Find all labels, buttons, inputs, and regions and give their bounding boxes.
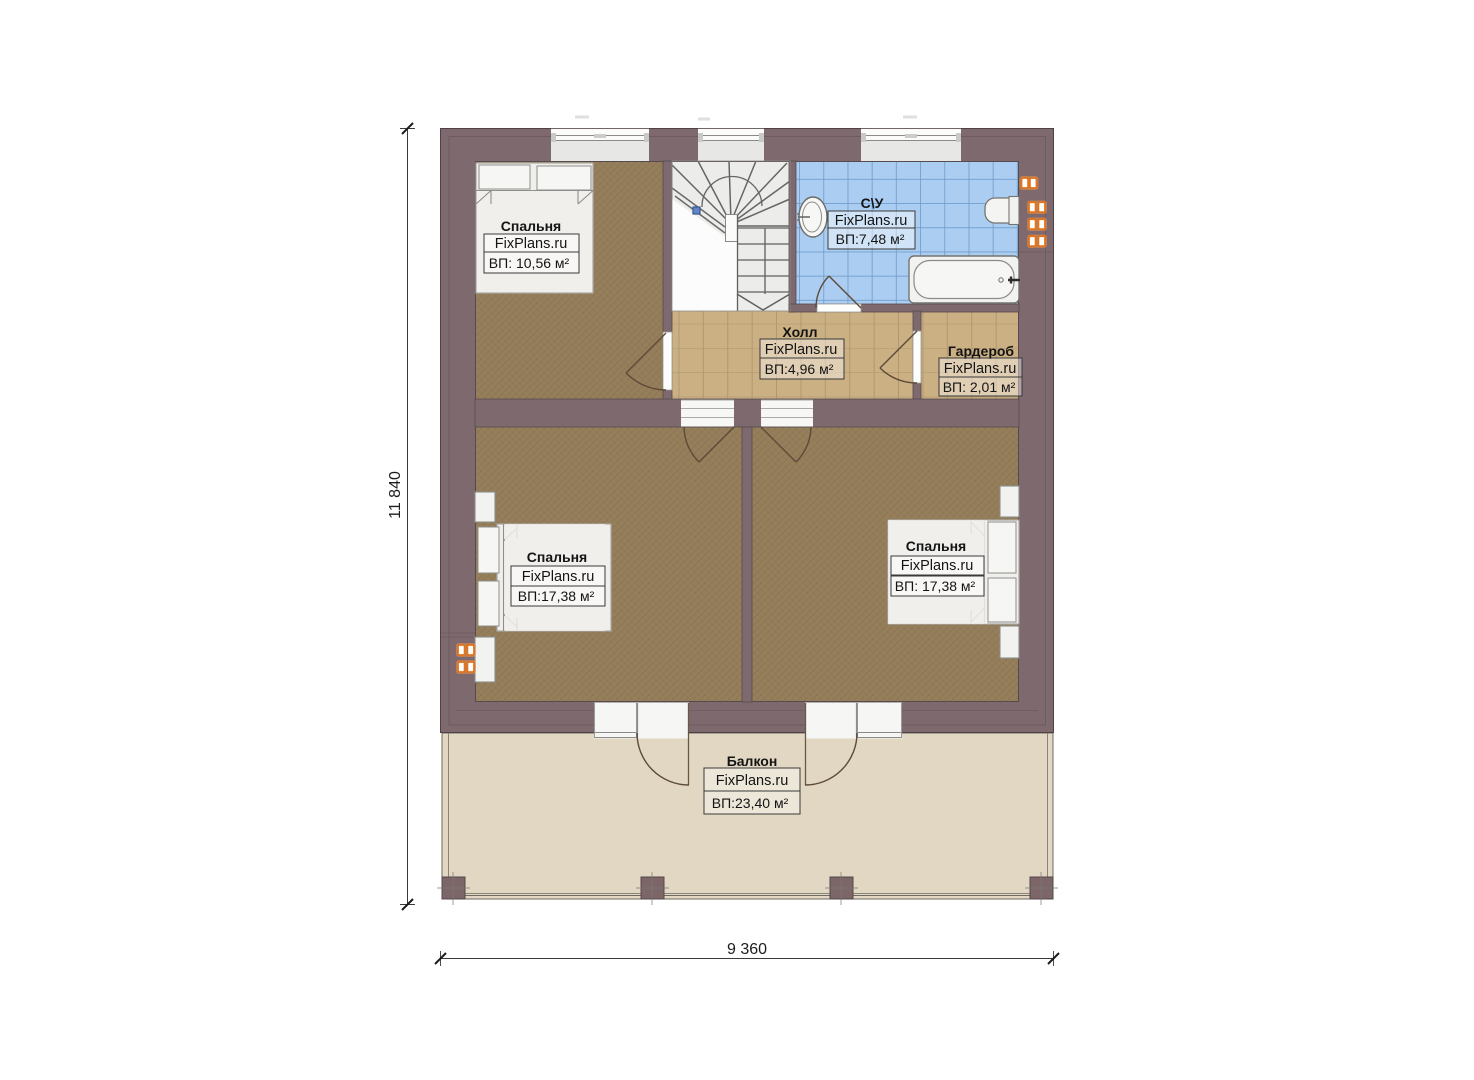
svg-text:ВП:17,38 м²: ВП:17,38 м² [518, 588, 595, 604]
svg-text:ВП:23,40 м²: ВП:23,40 м² [712, 795, 789, 811]
svg-text:FixPlans.ru: FixPlans.ru [495, 236, 568, 252]
svg-text:ВП:4,96 м²: ВП:4,96 м² [765, 361, 834, 377]
svg-text:FixPlans.ru: FixPlans.ru [901, 558, 974, 574]
svg-text:ВП: 2,01 м²: ВП: 2,01 м² [943, 379, 1016, 395]
svg-text:FixPlans.ru: FixPlans.ru [716, 773, 789, 789]
svg-text:Спальня: Спальня [527, 549, 587, 565]
svg-text:FixPlans.ru: FixPlans.ru [944, 361, 1017, 377]
svg-text:ВП: 17,38 м²: ВП: 17,38 м² [895, 578, 976, 594]
svg-text:Балкон: Балкон [727, 753, 778, 769]
svg-text:ВП:7,48 м²: ВП:7,48 м² [836, 231, 905, 247]
svg-text:11 840: 11 840 [387, 471, 404, 519]
svg-text:Спальня: Спальня [906, 538, 966, 554]
svg-text:С\У: С\У [861, 195, 884, 211]
svg-text:FixPlans.ru: FixPlans.ru [765, 342, 838, 358]
svg-text:Гардероб: Гардероб [948, 343, 1015, 359]
svg-text:ВП: 10,56 м²: ВП: 10,56 м² [489, 255, 570, 271]
svg-text:Холл: Холл [782, 324, 817, 340]
svg-text:Спальня: Спальня [501, 218, 561, 234]
svg-text:FixPlans.ru: FixPlans.ru [835, 213, 908, 229]
svg-text:9 360: 9 360 [727, 941, 767, 958]
svg-text:FixPlans.ru: FixPlans.ru [522, 569, 595, 585]
